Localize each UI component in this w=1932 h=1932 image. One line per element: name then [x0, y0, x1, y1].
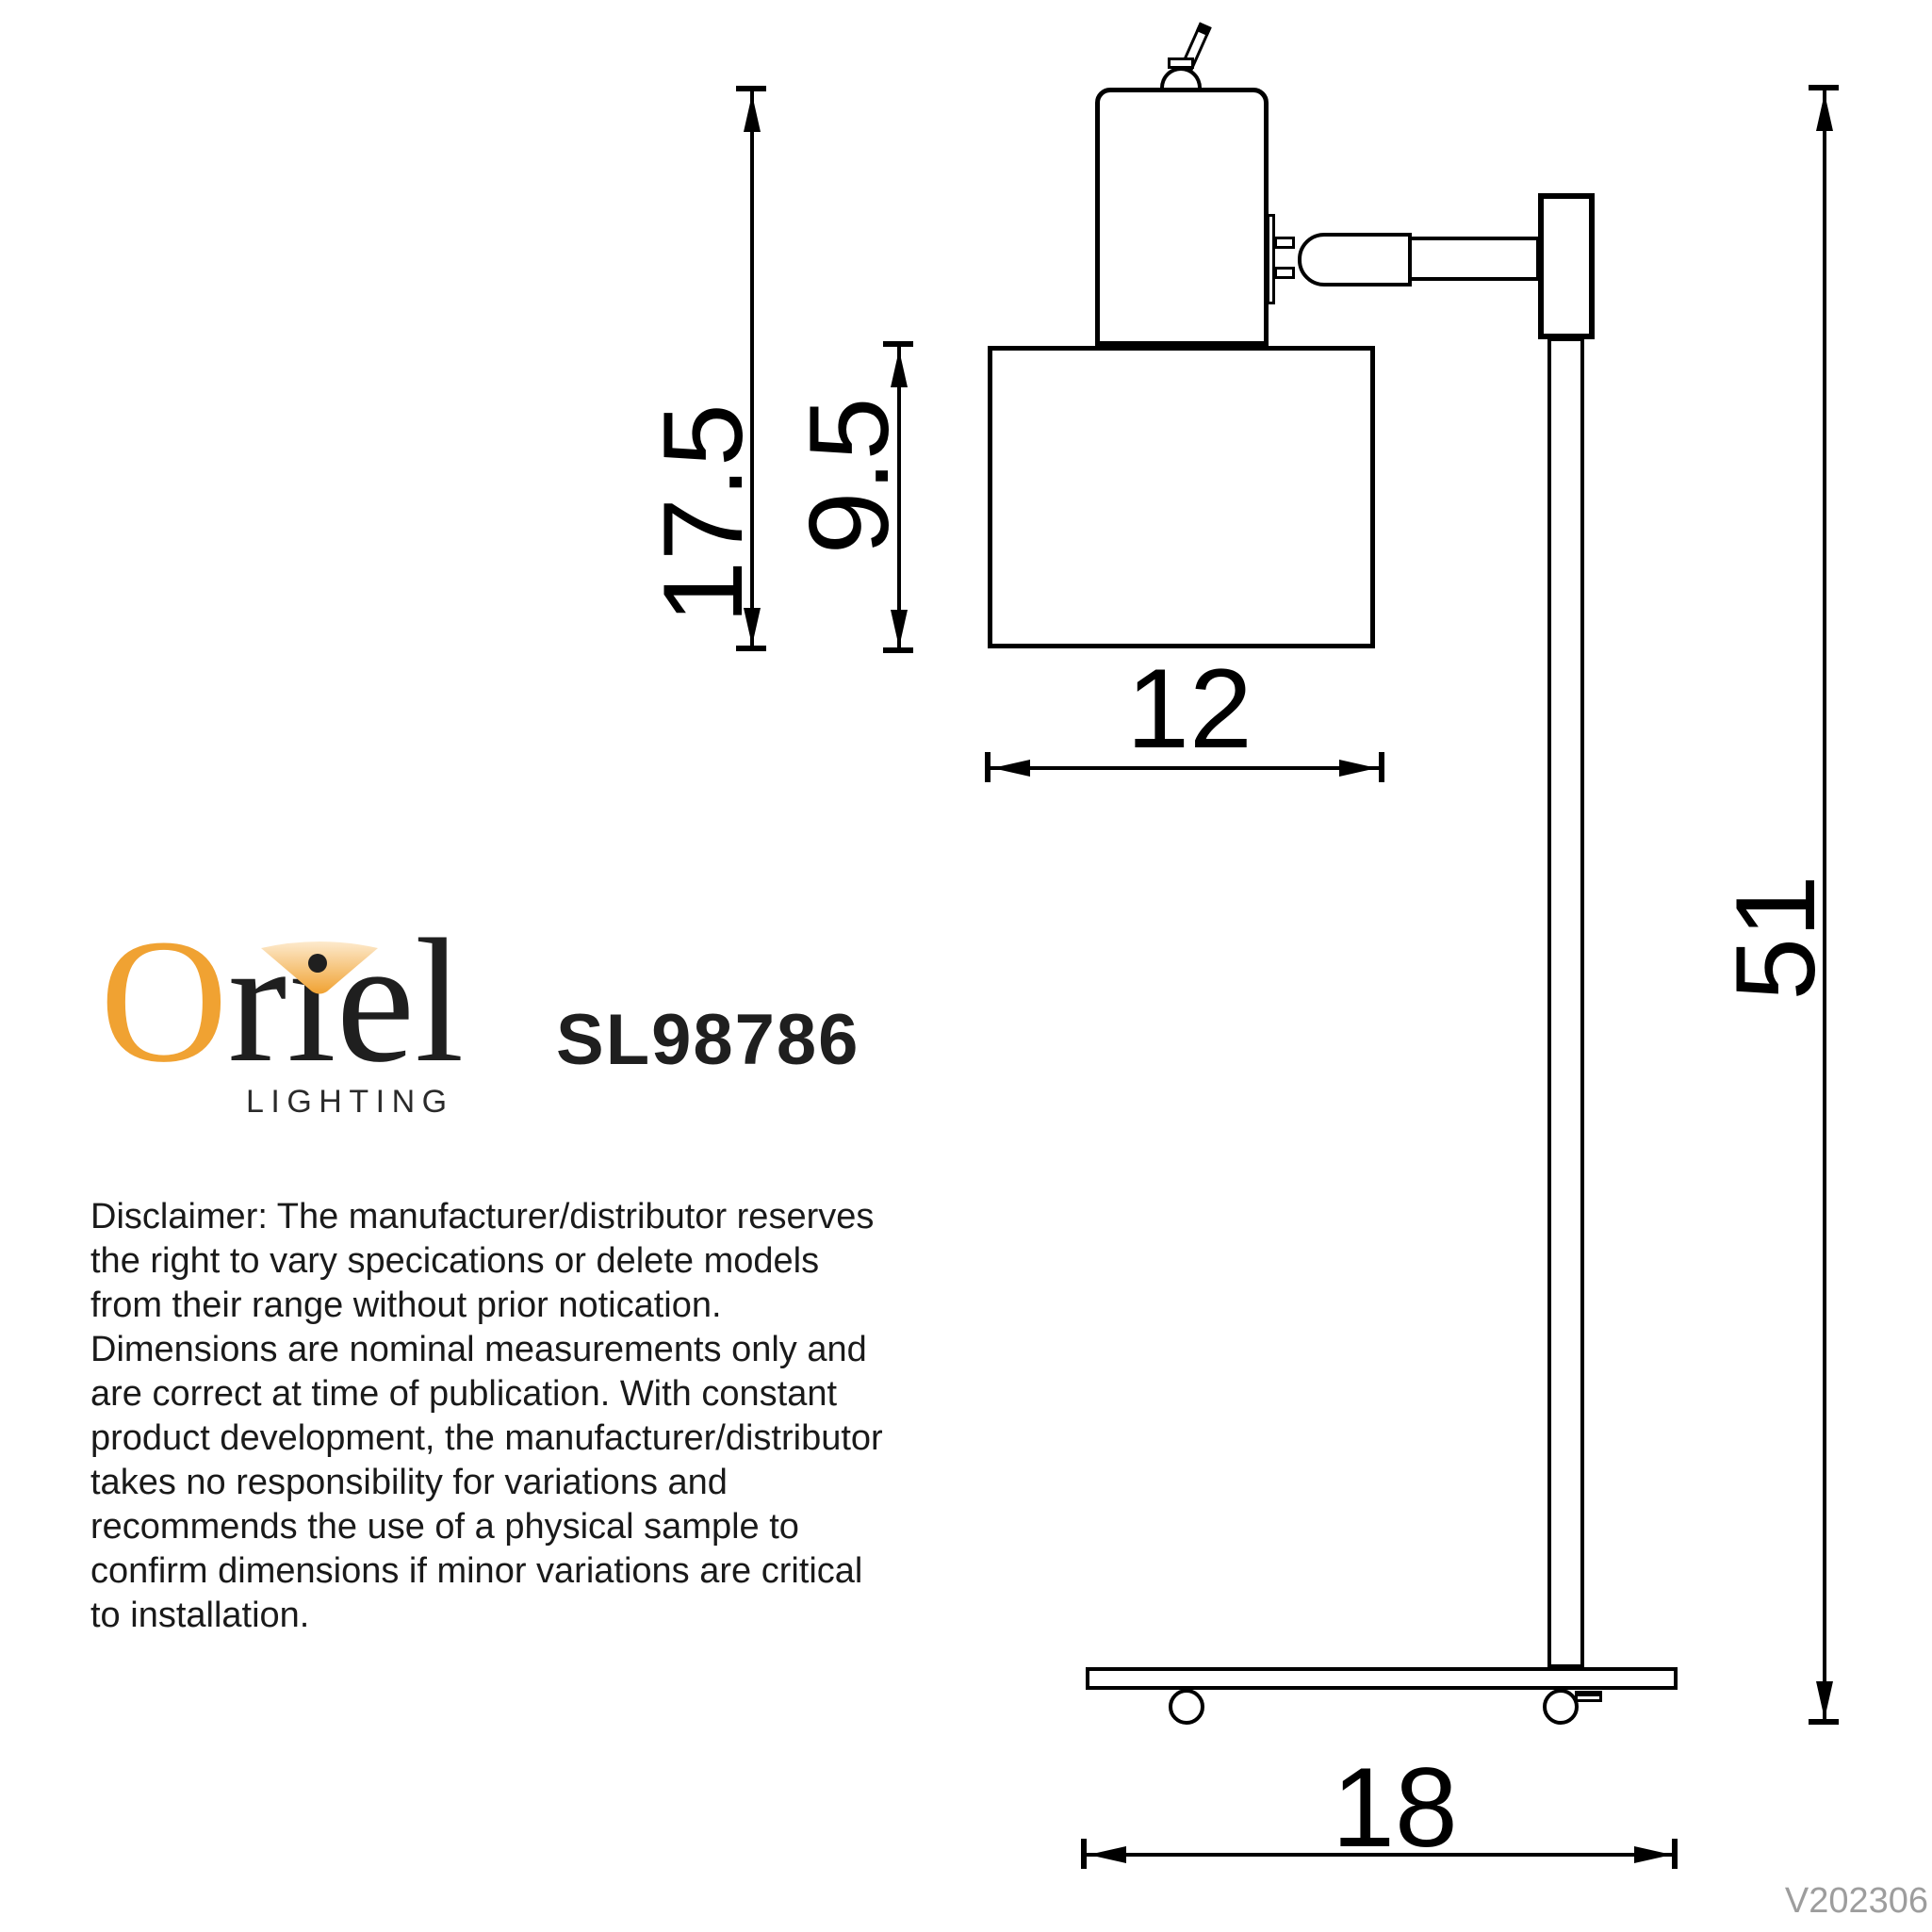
- arrowhead-up-icon: [1816, 93, 1833, 131]
- lamp-pole: [1547, 337, 1584, 1668]
- arrowhead-down-icon: [1816, 1681, 1833, 1719]
- disclaimer-text: Disclaimer: The manufacturer/distributor…: [90, 1195, 958, 1638]
- base-castor-right: [1543, 1689, 1579, 1725]
- dimension-end-tick: [985, 752, 991, 782]
- lamp-shade: [988, 346, 1375, 648]
- arrowhead-left-icon: [1089, 1846, 1126, 1863]
- toggle-switch-tip: [1196, 22, 1212, 36]
- hinge-clamp-top: [1274, 237, 1295, 249]
- lamp-dot-icon: [308, 954, 327, 973]
- hinge-clamp-bottom: [1274, 267, 1295, 279]
- arrowhead-right-icon: [1634, 1846, 1672, 1863]
- dimension-end-tick: [736, 646, 766, 651]
- product-spec-sheet: 17.5 9.5 12 51 18 Orıel: [0, 0, 1932, 1932]
- arrowhead-down-icon: [891, 610, 908, 647]
- dimension-end-tick: [1809, 1719, 1839, 1725]
- power-cord-line: [1577, 1693, 1600, 1696]
- dimension-value: 51: [1719, 875, 1832, 1000]
- brand-rest: rıel: [228, 902, 465, 1099]
- dimension-value: 17.5: [647, 403, 760, 624]
- lamp-head-housing: [1095, 88, 1269, 346]
- dimension-end-tick: [736, 86, 766, 91]
- power-cord-exit: [1575, 1691, 1602, 1702]
- head-hinge-plate: [1267, 214, 1275, 304]
- dimension-end-tick: [883, 341, 913, 347]
- dimension-end-tick: [1809, 85, 1839, 90]
- dimension-value: 9.5: [793, 398, 906, 555]
- lamp-base: [1086, 1667, 1678, 1690]
- dimension-end-tick: [1081, 1839, 1087, 1869]
- dimension-end-tick: [1379, 752, 1384, 782]
- model-number: SL98786: [556, 999, 860, 1081]
- dimension-value: 18: [1332, 1751, 1457, 1864]
- lamp-pivot-cylinder: [1298, 233, 1412, 287]
- arrowhead-up-icon: [744, 94, 761, 132]
- dimension-end-tick: [1672, 1839, 1678, 1869]
- arrowhead-right-icon: [1339, 760, 1377, 777]
- pole-top-bracket: [1538, 193, 1595, 339]
- arrowhead-left-icon: [992, 760, 1030, 777]
- dimension-value: 12: [1126, 652, 1252, 765]
- brand-tagline: LIGHTING: [246, 1084, 454, 1121]
- version-code: V202306: [1785, 1881, 1928, 1922]
- toggle-switch-dome: [1160, 67, 1202, 89]
- base-castor-left: [1169, 1689, 1204, 1725]
- lamp-arm: [1408, 237, 1540, 281]
- arrowhead-up-icon: [891, 350, 908, 387]
- dimension-end-tick: [883, 647, 913, 653]
- brand-initial: O: [100, 902, 228, 1099]
